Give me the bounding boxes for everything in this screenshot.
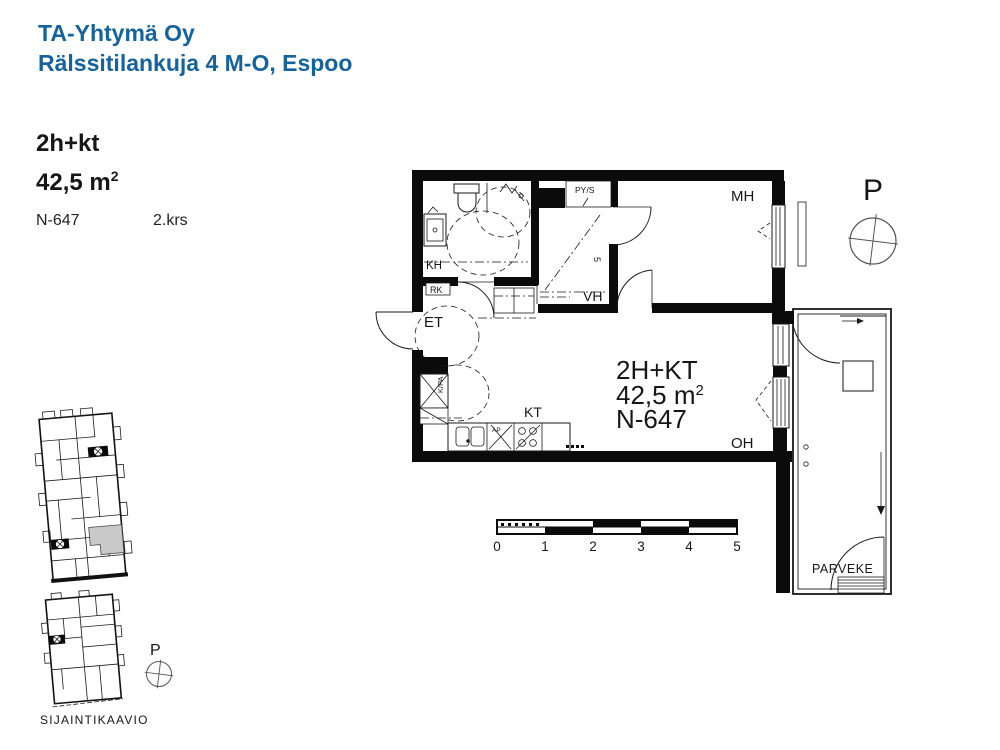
vh-closet: VH 5	[537, 215, 608, 304]
plan-info-block: 2H+KT 42,5 m2 N-647	[616, 355, 704, 434]
front-door	[376, 312, 413, 349]
north-letter: P	[863, 174, 883, 207]
room-label-mh: MH	[731, 188, 754, 205]
plan-info-unit: N-647	[616, 404, 687, 434]
appliance-label-ap: AP	[492, 427, 501, 434]
kitchen-counter: AP	[448, 423, 584, 451]
vh-mh-door	[613, 207, 651, 245]
room-label-kh: KH	[426, 260, 442, 272]
living-balcony-door	[773, 324, 789, 366]
site-north-letter: P	[150, 642, 161, 659]
site-plan: P SIJAINTIKAAVIO	[31, 405, 174, 727]
north-compass: P	[845, 174, 901, 269]
tall-cabinet-kpa: K/PA	[420, 374, 462, 424]
room-label-kt: KT	[524, 404, 542, 420]
hall-closet	[494, 288, 534, 313]
room-label-pys: PY/S	[575, 185, 595, 195]
svg-text:0: 0	[493, 539, 501, 554]
room-label-vh: VH	[583, 288, 602, 304]
room-label-rk: RK	[430, 285, 443, 295]
site-caption: SIJAINTIKAAVIO	[40, 713, 149, 727]
toilet	[454, 184, 479, 212]
scale-bar: 0 1 2 3 4 5	[493, 520, 741, 554]
mh-window	[758, 202, 806, 268]
cabinet-label-kpa: K/PA	[436, 376, 445, 393]
svg-text:3: 3	[637, 539, 645, 554]
room-label-et: ET	[424, 314, 443, 331]
threshold-hatch	[838, 577, 884, 593]
room-label-parveke: PARVEKE	[812, 562, 873, 576]
scale-numbers: 0 1 2 3 4 5	[493, 539, 741, 554]
sink	[424, 207, 446, 246]
plan-drawing: PARVEKE	[0, 0, 1000, 750]
svg-text:5: 5	[733, 539, 741, 554]
counter-dots	[566, 445, 584, 448]
stairwell-icon-lower	[49, 635, 66, 645]
svg-text:2: 2	[589, 539, 597, 554]
svg-text:1: 1	[541, 539, 549, 554]
site-building-upper	[31, 405, 133, 581]
turning-circle	[447, 211, 519, 275]
kitchen: K/PA AP	[420, 374, 584, 451]
site-building-lower	[39, 588, 128, 707]
vh-small-mark: 5	[592, 257, 602, 262]
living-window	[756, 377, 789, 428]
bathroom: KH	[413, 183, 530, 275]
pys-closet: PY/S	[566, 181, 611, 207]
room-label-oh: OH	[731, 435, 754, 452]
bathroom-door	[458, 282, 494, 318]
living-mh-door	[617, 270, 652, 308]
balcony: PARVEKE	[792, 309, 891, 594]
svg-text:4: 4	[685, 539, 693, 554]
site-compass: P	[143, 642, 174, 690]
